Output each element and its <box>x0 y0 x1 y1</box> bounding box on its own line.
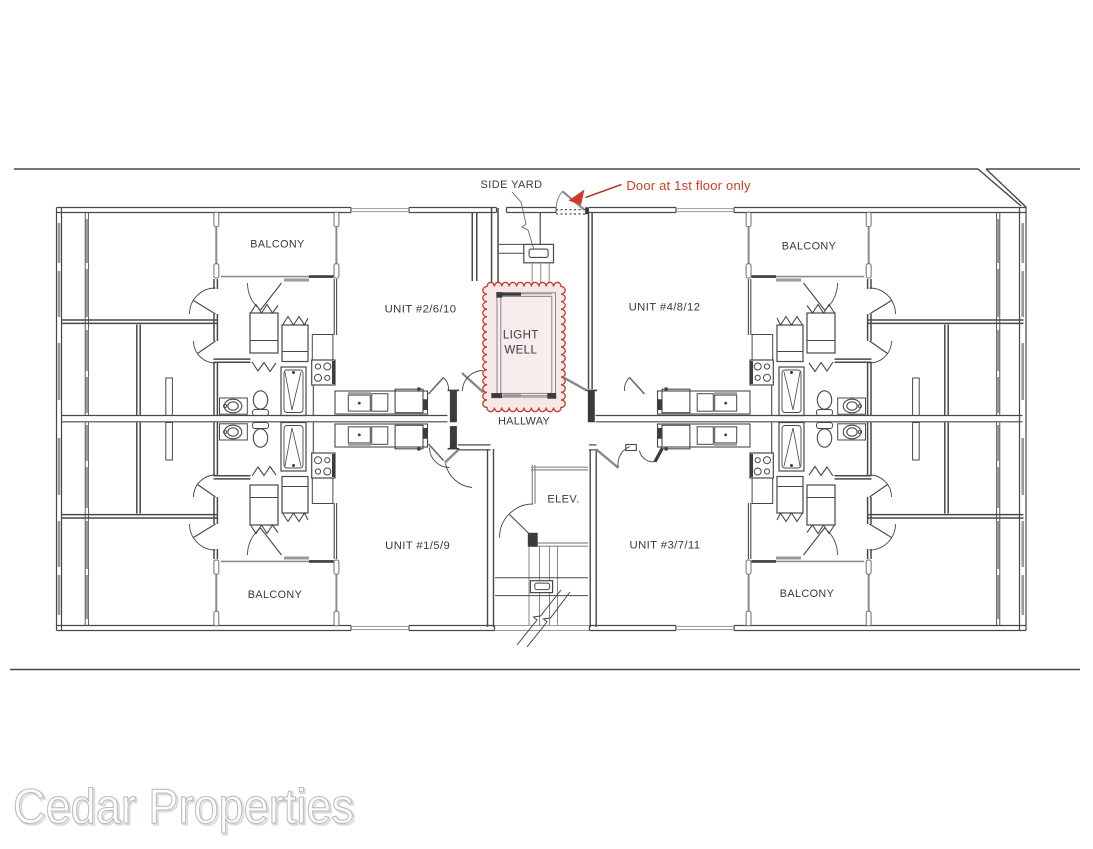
svg-text:Cedar Properties: Cedar Properties <box>13 780 354 834</box>
svg-text:HALLWAY: HALLWAY <box>498 416 550 428</box>
svg-text:BALCONY: BALCONY <box>248 589 302 601</box>
svg-text:UNIT #2/6/10: UNIT #2/6/10 <box>385 304 457 316</box>
svg-text:SIDE YARD: SIDE YARD <box>481 179 543 191</box>
svg-text:UNIT #3/7/11: UNIT #3/7/11 <box>630 540 701 552</box>
svg-text:BALCONY: BALCONY <box>782 241 836 253</box>
svg-text:ELEV.: ELEV. <box>547 494 579 506</box>
svg-text:Door at 1st floor only: Door at 1st floor only <box>626 178 751 193</box>
svg-text:UNIT #1/5/9: UNIT #1/5/9 <box>385 540 450 552</box>
svg-text:LIGHT: LIGHT <box>503 330 539 342</box>
svg-text:BALCONY: BALCONY <box>250 239 304 251</box>
svg-text:BALCONY: BALCONY <box>780 588 834 600</box>
svg-text:WELL: WELL <box>504 344 537 356</box>
svg-text:UNIT #4/8/12: UNIT #4/8/12 <box>629 302 701 314</box>
